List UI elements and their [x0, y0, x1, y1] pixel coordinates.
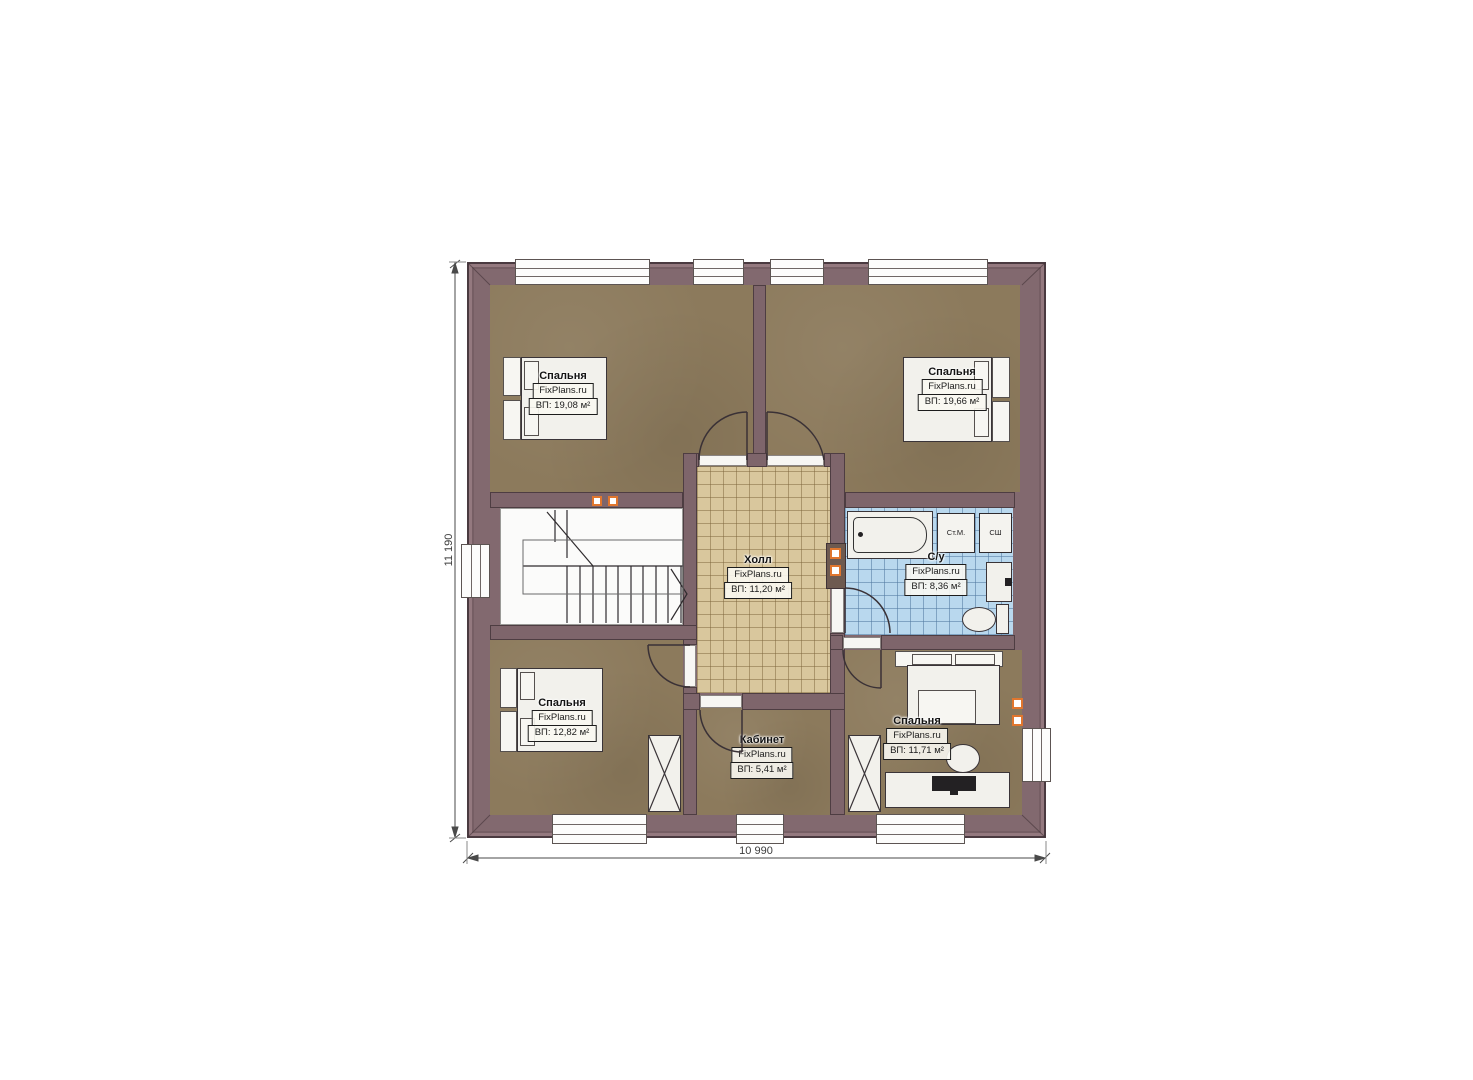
door-threshold-bedroom-top-left [699, 455, 747, 466]
label-bedroom-top-left: Спальня FixPlans.ru ВП: 19,08 м² [529, 370, 598, 415]
brand-box: FixPlans.ru [921, 379, 983, 395]
room-name: Спальня [538, 697, 586, 709]
nightstand [500, 711, 517, 752]
brand-box: FixPlans.ru [727, 567, 789, 583]
staircase-floor [500, 508, 683, 625]
door-threshold-bedroom-top-right [767, 455, 824, 466]
dimension-horizontal-label: 10 990 [732, 845, 780, 857]
door-threshold-bedroom-bottom-left [684, 645, 696, 687]
nightstand [992, 357, 1010, 398]
pillow [974, 408, 989, 437]
area-box: ВП: 5,41 м² [730, 762, 793, 778]
window-bottom-3 [876, 814, 965, 844]
wardrobe-left [648, 735, 681, 812]
toilet-tank [996, 604, 1009, 634]
window-left [461, 544, 490, 598]
wall-hall-top-center [747, 453, 767, 467]
window-bottom-1 [552, 814, 647, 844]
brand-box: FixPlans.ru [905, 564, 967, 580]
window-top-3 [770, 259, 824, 285]
wardrobe-right [848, 735, 881, 812]
nightstand [503, 357, 521, 396]
room-name: Кабинет [740, 734, 785, 746]
toilet-bowl [962, 607, 996, 632]
wall-office-top-left [683, 693, 700, 710]
vent-marker-2 [830, 565, 841, 576]
wall-bathroom-left-lower [830, 633, 845, 815]
room-name: Спальня [539, 370, 587, 382]
wall-top-bedrooms-divider [753, 285, 766, 455]
room-name: Спальня [893, 715, 941, 727]
wall-bathroom-top [845, 492, 1015, 508]
brand-box: FixPlans.ru [531, 710, 593, 726]
room-name: С/у [927, 551, 944, 563]
wall-staircase-top [490, 492, 683, 508]
brand-box: FixPlans.ru [532, 383, 594, 399]
window-right [1022, 728, 1051, 782]
dimension-vertical-label: 11 190 [443, 526, 455, 574]
wall-bathroom-bottom-right [881, 635, 1015, 650]
bathtub-basin [853, 517, 927, 553]
monitor-stand [950, 791, 958, 795]
room-name: Холл [744, 554, 772, 566]
washing-machine-label: Ст.М. [947, 529, 965, 537]
desk-chair [946, 744, 980, 773]
brand-box: FixPlans.ru [886, 728, 948, 744]
wall-office-top-right [742, 693, 845, 710]
wall-hall-left-upper [683, 453, 697, 645]
window-top-4 [868, 259, 988, 285]
label-bedroom-top-right: Спальня FixPlans.ru ВП: 19,66 м² [918, 366, 987, 411]
drying-cabinet-label: СШ [989, 529, 1001, 537]
window-top-1 [515, 259, 650, 285]
label-hall: Холл FixPlans.ru ВП: 11,20 м² [724, 554, 792, 599]
vent-marker-4 [608, 496, 618, 506]
monitor [932, 776, 976, 791]
pillow [955, 654, 995, 665]
vent-marker-3 [592, 496, 602, 506]
window-bottom-2 [736, 814, 784, 844]
floor-plan-page: Ст.М. СШ Спальня FixPlans.ru ВП: 19,08 м… [0, 0, 1473, 1080]
label-bathroom: С/у FixPlans.ru ВП: 8,36 м² [904, 551, 967, 596]
vent-marker-5 [1012, 698, 1023, 709]
door-threshold-bedroom-bottom-right [843, 637, 881, 649]
nightstand [992, 401, 1010, 442]
label-office: Кабинет FixPlans.ru ВП: 5,41 м² [730, 734, 793, 779]
area-box: ВП: 19,08 м² [529, 398, 598, 414]
area-box: ВП: 11,20 м² [724, 582, 792, 598]
label-bedroom-bottom-right: Спальня FixPlans.ru ВП: 11,71 м² [883, 715, 951, 760]
vent-marker-1 [830, 548, 841, 559]
door-threshold-office [700, 695, 742, 708]
nightstand [503, 400, 521, 440]
area-box: ВП: 12,82 м² [528, 725, 597, 741]
drying-cabinet: СШ [979, 513, 1012, 553]
area-box: ВП: 8,36 м² [904, 579, 967, 595]
area-box: ВП: 19,66 м² [918, 394, 987, 410]
washing-machine: Ст.М. [937, 513, 975, 553]
brand-box: FixPlans.ru [731, 747, 793, 763]
vent-marker-6 [1012, 715, 1023, 726]
area-box: ВП: 11,71 м² [883, 743, 951, 759]
pillow [912, 654, 952, 665]
room-name: Спальня [928, 366, 976, 378]
wall-staircase-bottom [490, 625, 697, 640]
nightstand [500, 668, 517, 708]
window-top-2 [693, 259, 744, 285]
door-threshold-bathroom [831, 588, 844, 633]
bathtub-drain [858, 532, 863, 537]
wall-bathroom-bottom-left [830, 635, 843, 650]
pillow [520, 672, 535, 700]
sink-tap [1005, 578, 1012, 586]
label-bedroom-bottom-left: Спальня FixPlans.ru ВП: 12,82 м² [528, 697, 597, 742]
